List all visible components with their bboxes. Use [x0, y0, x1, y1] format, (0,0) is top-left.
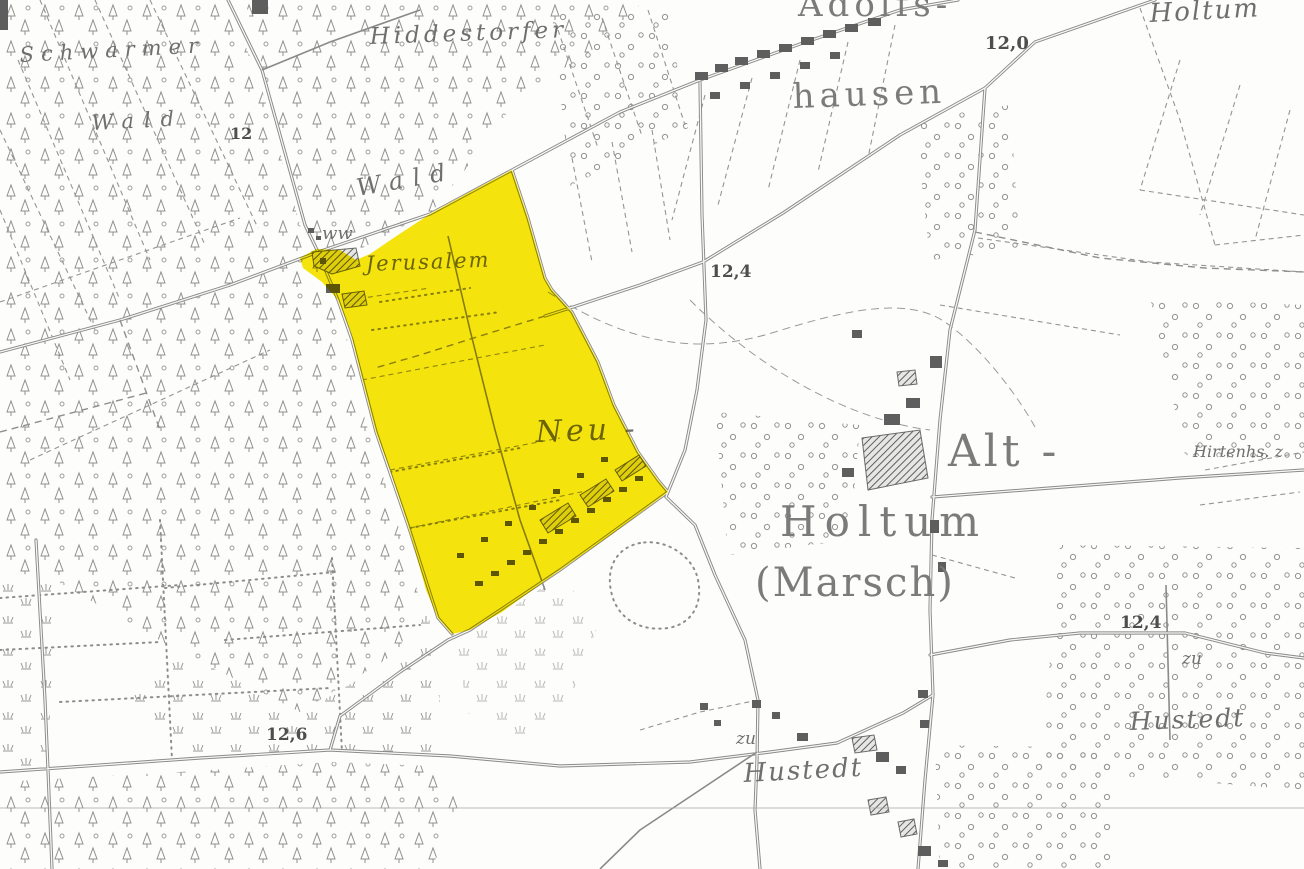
label-hustedt-west: Hustedt	[742, 753, 864, 789]
label-zu-east: zu	[1181, 649, 1202, 669]
label-adolfshausen-bottom: hausen	[792, 72, 947, 117]
label-alt: Alt -	[947, 426, 1060, 477]
label-hustedt-east: Hustedt	[1128, 703, 1246, 736]
label-holtum-northeast: Holtum	[1148, 0, 1261, 29]
label-adolfshausen-top: Adolfs-	[797, 0, 952, 25]
label-elevation-12-0: 12,0	[985, 33, 1029, 54]
label-hirtenhaus: Hirtenhs. z	[1192, 442, 1284, 461]
orchard-north-of-holtum	[915, 105, 1020, 260]
orchard-east-middle	[1150, 298, 1304, 462]
label-holtum: Holtum	[780, 497, 987, 546]
forest-southwest	[0, 762, 468, 869]
label-elevation-12-6: 12,6	[266, 725, 307, 745]
label-zu-west: zu	[735, 729, 756, 749]
label-schwarmer-wald: Wald	[91, 106, 185, 135]
label-elevation-12-4-road: 12,4	[710, 262, 752, 282]
label-elevation-12-4-east: 12,4	[1120, 613, 1162, 633]
label-marsch: (Marsch)	[755, 560, 955, 606]
label-ww: ww	[322, 223, 353, 244]
map-canvas[interactable]: Schwarmer Wald 12 Hiddestorfer Wald ww J…	[0, 0, 1304, 869]
orchard-south-east	[935, 745, 1115, 869]
label-parcel-number-12: 12	[230, 124, 252, 143]
